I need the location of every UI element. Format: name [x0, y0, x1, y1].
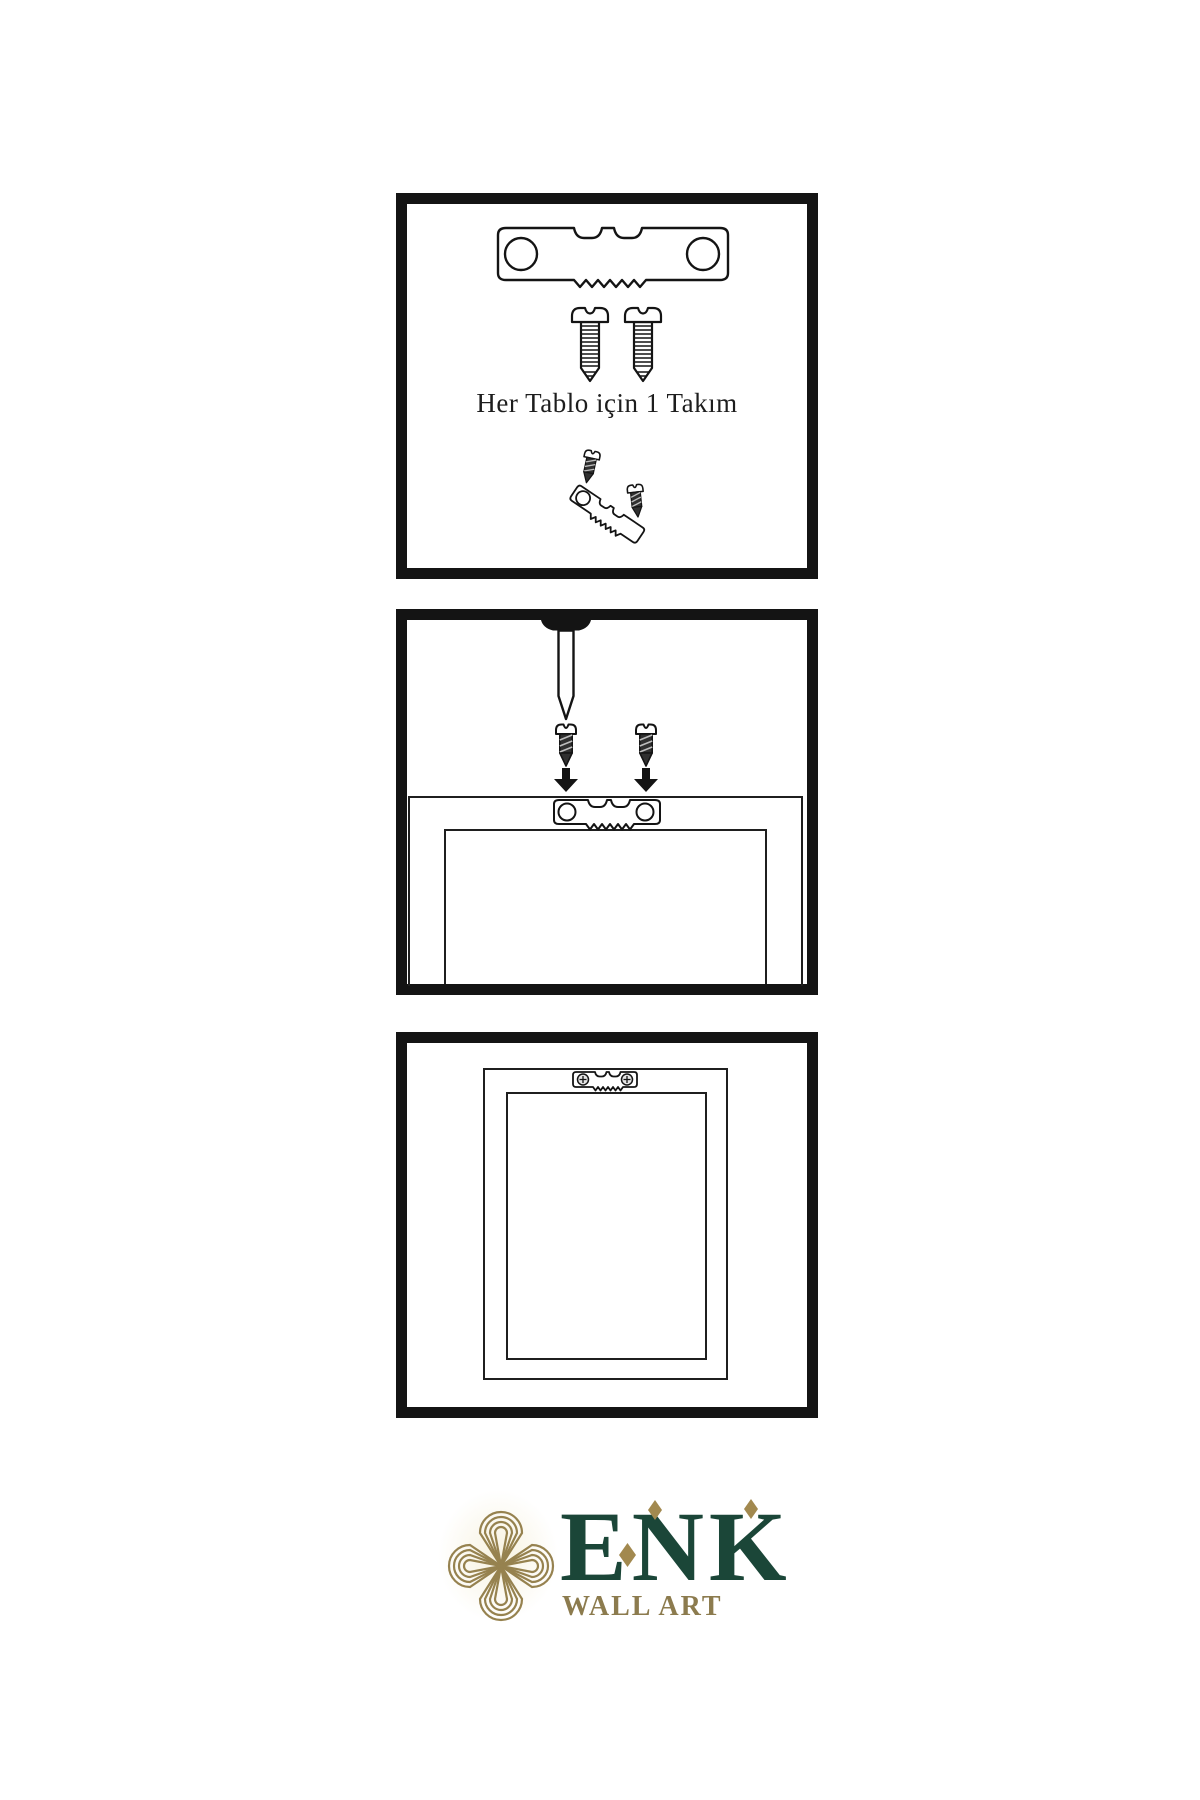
dark-screw-icon — [627, 484, 646, 518]
brand-tagline: WALL ART — [562, 1590, 723, 1624]
picture-frame-inner — [444, 829, 767, 984]
screw-icon — [553, 721, 579, 767]
screw-icon — [570, 304, 610, 384]
nail-icon — [540, 620, 592, 722]
down-arrow-icon — [634, 768, 658, 792]
hanger-hole — [505, 238, 537, 270]
interlaced-knot-icon — [437, 1489, 559, 1629]
hanger-hole — [687, 238, 719, 270]
screw-into-tilted-hanger-icon — [560, 446, 672, 554]
hanger-hole — [637, 804, 654, 821]
screw-icon — [633, 721, 659, 767]
picture-frame-inner — [506, 1092, 707, 1360]
hanger-hole — [559, 804, 576, 821]
sawtooth-hanger-icon — [494, 224, 732, 290]
dark-screw-icon — [579, 449, 601, 484]
mounting-screw-head-icon — [578, 1074, 589, 1085]
sawtooth-hanger-icon — [552, 798, 662, 832]
mounted-sawtooth-hanger-icon — [571, 1070, 639, 1093]
down-arrow-icon — [554, 768, 578, 792]
kit-caption: Her Tablo için 1 Takım — [407, 388, 807, 419]
panel-hanging-frame — [396, 1032, 818, 1418]
panel-hardware-kit: Her Tablo için 1 Takım — [396, 193, 818, 579]
mounting-screw-head-icon — [622, 1074, 633, 1085]
brand-name: ENK — [560, 1497, 792, 1597]
screw-icon — [623, 304, 663, 384]
nail-head — [541, 620, 591, 631]
panel-wall-nail — [396, 609, 818, 995]
instruction-sheet: Her Tablo için 1 Takım — [0, 0, 1200, 1800]
